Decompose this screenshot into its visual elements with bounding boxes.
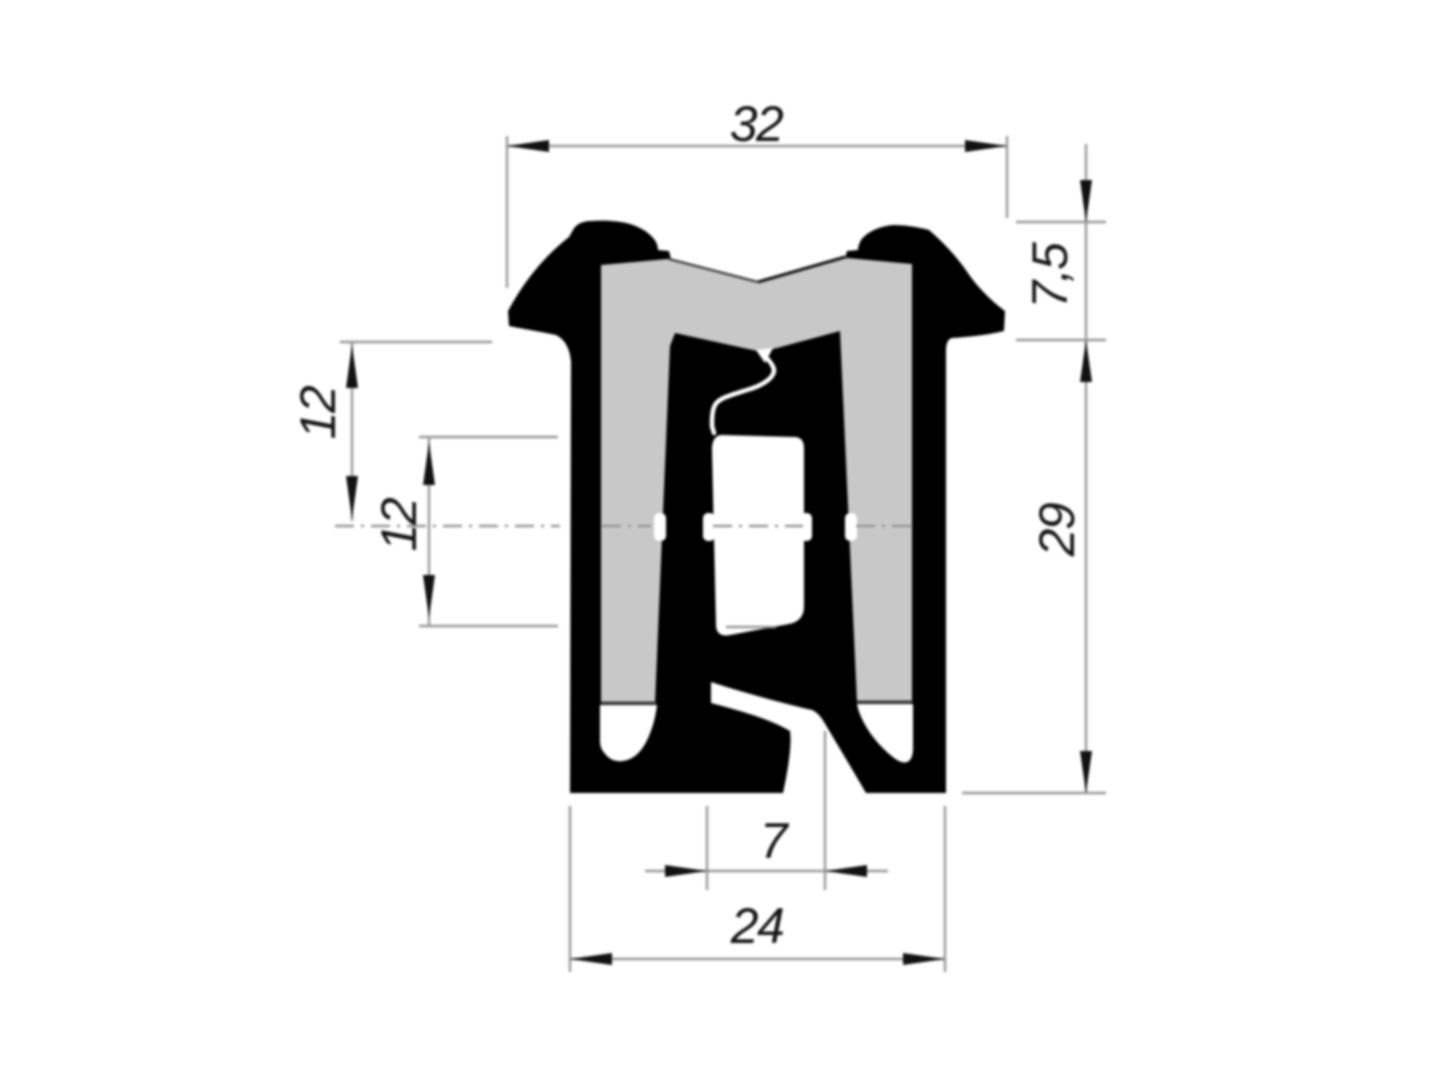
svg-text:12: 12 xyxy=(371,497,427,551)
svg-text:32: 32 xyxy=(730,96,784,152)
svg-text:29: 29 xyxy=(1029,503,1085,557)
svg-text:24: 24 xyxy=(730,898,784,954)
svg-text:12: 12 xyxy=(290,385,346,439)
svg-text:7: 7 xyxy=(760,813,790,869)
svg-text:7,5: 7,5 xyxy=(1022,242,1078,309)
